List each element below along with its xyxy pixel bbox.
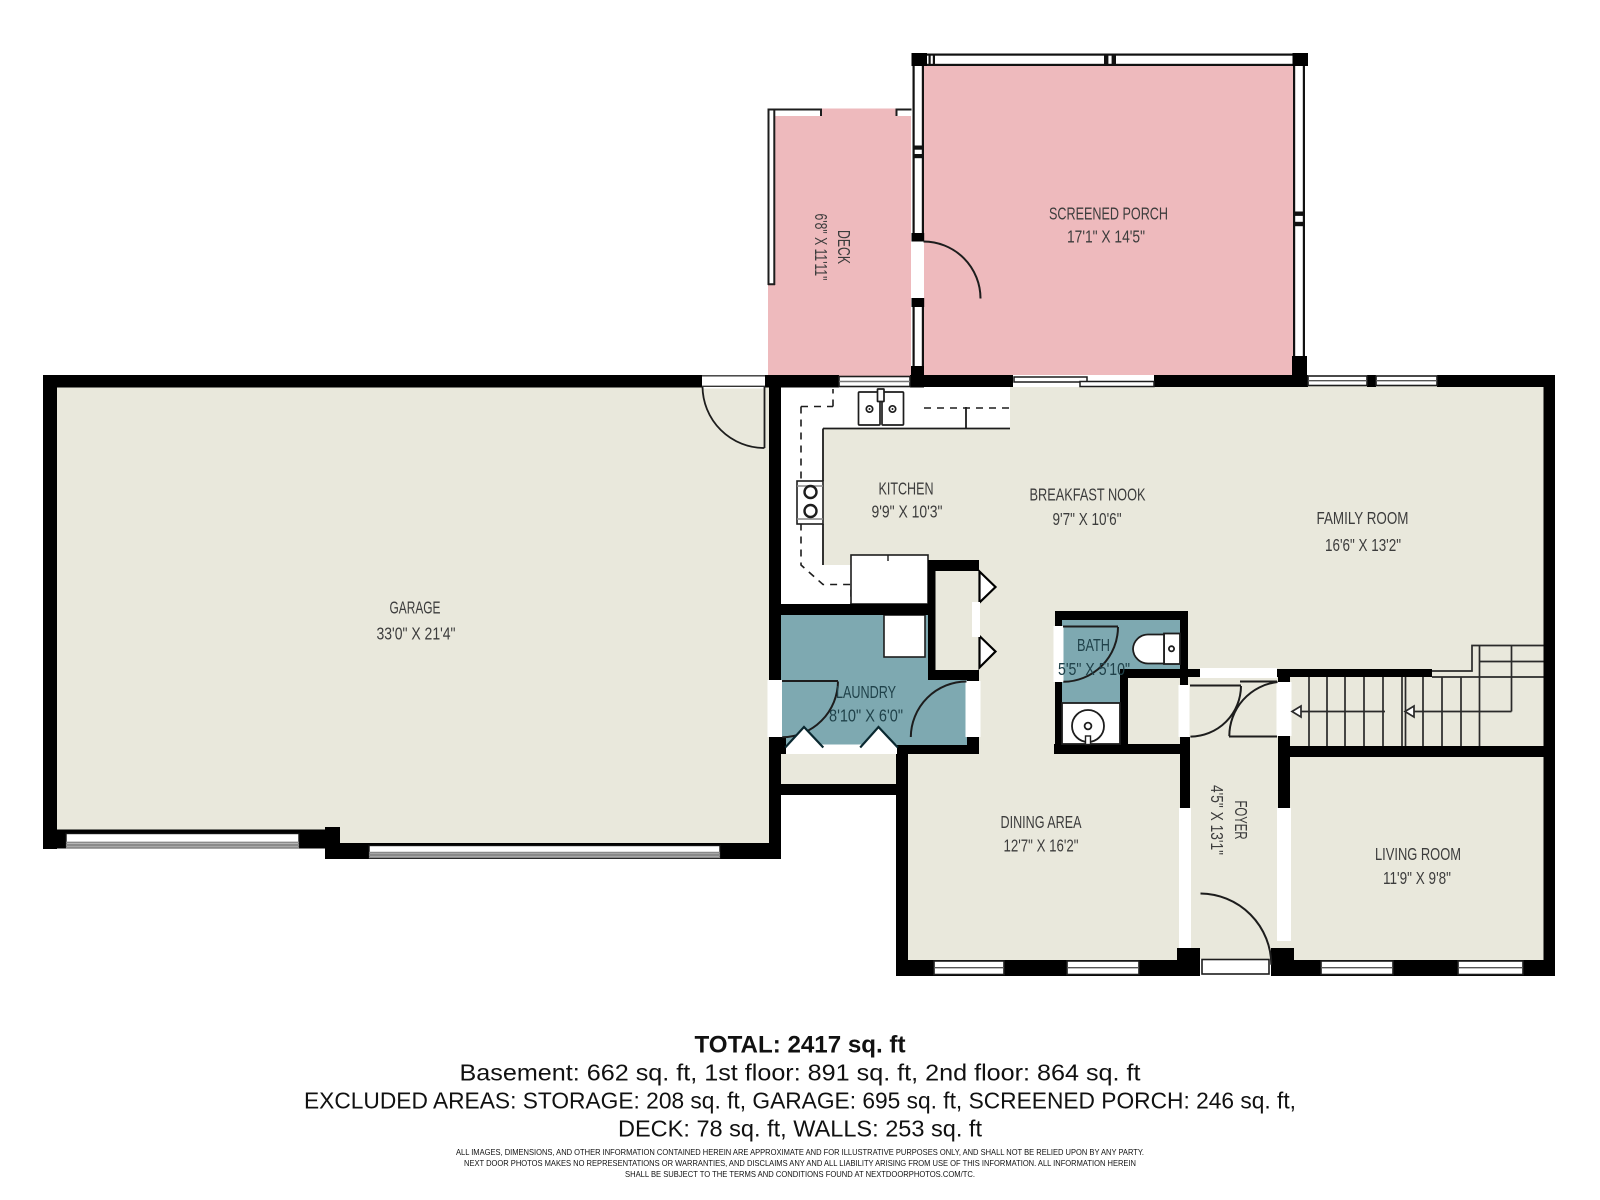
svg-text:TOTAL: 2417 sq. ft: TOTAL: 2417 sq. ft (695, 1032, 906, 1059)
svg-text:KITCHEN: KITCHEN (879, 479, 934, 499)
svg-text:11'9" X 9'8": 11'9" X 9'8" (1383, 868, 1451, 888)
svg-text:16'6" X 13'2": 16'6" X 13'2" (1325, 535, 1401, 555)
svg-text:LAUNDRY: LAUNDRY (836, 682, 896, 702)
svg-text:DECK: 78 sq. ft, WALLS: 253 sq: DECK: 78 sq. ft, WALLS: 253 sq. ft (618, 1116, 982, 1142)
svg-text:4'5" X 13'1": 4'5" X 13'1" (1207, 785, 1227, 855)
svg-text:SCREENED PORCH: SCREENED PORCH (1049, 204, 1168, 224)
svg-text:SHALL BE SUBJECT TO THE TERMS: SHALL BE SUBJECT TO THE TERMS AND CONDIT… (625, 1169, 975, 1179)
svg-text:BREAKFAST NOOK: BREAKFAST NOOK (1030, 485, 1146, 505)
svg-text:FOYER: FOYER (1231, 801, 1251, 840)
svg-text:EXCLUDED AREAS: STORAGE: 208 s: EXCLUDED AREAS: STORAGE: 208 sq. ft, GAR… (304, 1088, 1296, 1114)
svg-text:33'0" X 21'4": 33'0" X 21'4" (377, 624, 456, 644)
svg-text:5'5" X 5'10": 5'5" X 5'10" (1058, 659, 1130, 679)
svg-text:GARAGE: GARAGE (390, 598, 441, 618)
svg-text:BATH: BATH (1077, 635, 1110, 655)
svg-text:FAMILY ROOM: FAMILY ROOM (1317, 508, 1409, 528)
svg-text:NEXT DOOR PHOTOS MAKES NO REPR: NEXT DOOR PHOTOS MAKES NO REPRESENTATION… (464, 1158, 1136, 1168)
svg-text:Basement: 662 sq. ft, 1st floo: Basement: 662 sq. ft, 1st floor: 891 sq.… (460, 1060, 1141, 1086)
svg-text:9'9" X 10'3": 9'9" X 10'3" (872, 502, 943, 522)
svg-text:17'1" X 14'5": 17'1" X 14'5" (1067, 227, 1145, 247)
svg-text:6'8" X 11'11": 6'8" X 11'11" (811, 214, 831, 281)
svg-text:9'7" X 10'6": 9'7" X 10'6" (1053, 509, 1122, 529)
svg-text:12'7" X 16'2": 12'7" X 16'2" (1004, 836, 1079, 856)
svg-text:LIVING ROOM: LIVING ROOM (1375, 844, 1461, 864)
svg-text:DINING AREA: DINING AREA (1001, 812, 1082, 832)
svg-text:8'10" X 6'0": 8'10" X 6'0" (829, 706, 903, 726)
svg-text:DECK: DECK (834, 230, 854, 264)
svg-text:ALL IMAGES, DIMENSIONS, AND OT: ALL IMAGES, DIMENSIONS, AND OTHER INFORM… (456, 1147, 1144, 1157)
